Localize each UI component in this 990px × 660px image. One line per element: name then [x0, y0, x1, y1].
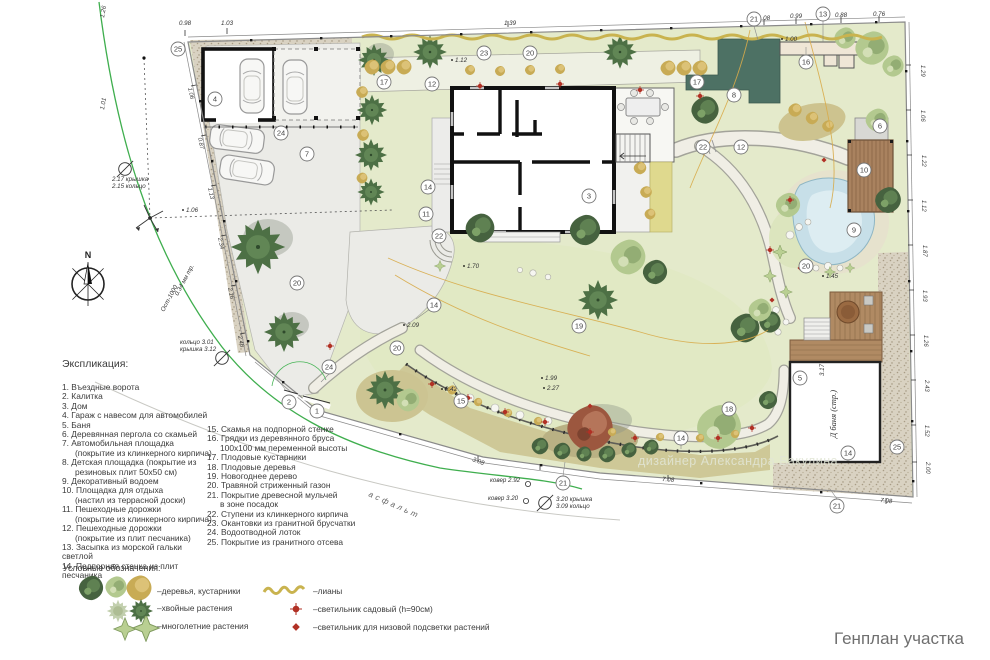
svg-text:17: 17: [380, 78, 388, 87]
marker-4: 4: [208, 92, 222, 106]
svg-text:1.12: 1.12: [455, 57, 468, 64]
svg-text:3.17: 3.17: [819, 363, 826, 376]
svg-text:Ост-1000: Ост-1000: [160, 284, 180, 313]
svg-text:0.98: 0.98: [179, 20, 192, 27]
marker-12: 12: [425, 77, 439, 91]
marker-14c: 14: [674, 431, 688, 445]
legend-label: –многолетние растения: [157, 621, 248, 631]
svg-text:3.09 кольцо: 3.09 кольцо: [556, 503, 590, 510]
designer-watermark: дизайнер Александра Бакулина: [638, 454, 838, 468]
marker-17b: 17: [690, 75, 704, 89]
car: [240, 59, 264, 113]
svg-text:2.27: 2.27: [546, 385, 560, 392]
svg-text:1.52: 1.52: [923, 425, 929, 437]
svg-text:2: 2: [287, 398, 291, 407]
svg-text:20: 20: [393, 344, 401, 353]
marker-23: 23: [477, 46, 491, 60]
marker-3: 3: [582, 189, 596, 203]
dining-table: [626, 98, 660, 116]
svg-text:12: 12: [737, 143, 745, 152]
list-item: 12. Пешеходные дорожки(покрытие из плит …: [62, 524, 212, 543]
legend-label: –светильник для низовой подсветки растен…: [313, 622, 490, 632]
svg-text:2.15 кольцо: 2.15 кольцо: [111, 183, 146, 190]
svg-text:1.99: 1.99: [545, 375, 558, 382]
svg-text:1.87: 1.87: [921, 245, 927, 257]
svg-text:2.43: 2.43: [923, 379, 929, 392]
legend-title: Условные обозначения:: [63, 563, 160, 573]
svg-text:10: 10: [860, 166, 868, 175]
marker-21b: 21: [556, 476, 570, 490]
svg-text:20: 20: [526, 49, 534, 58]
svg-text:1.06: 1.06: [186, 207, 199, 214]
svg-text:3: 3: [587, 192, 591, 201]
marker-11: 11: [419, 207, 433, 221]
marker-5: 5: [793, 371, 807, 385]
list-item: 25. Покрытие из гранитного отсева: [207, 538, 372, 547]
list-item: 8. Детская площадка (покрытие изрезиновы…: [62, 458, 212, 477]
svg-text:12: 12: [428, 80, 436, 89]
svg-text:ковер 2.92: ковер 2.92: [490, 477, 521, 484]
svg-text:11: 11: [422, 210, 430, 219]
list-item: 13. Засыпка из морской гальки светлой: [62, 543, 212, 562]
svg-text:14: 14: [424, 183, 432, 192]
marker-14a: 14: [421, 180, 435, 194]
lianas-icon: [262, 583, 310, 597]
svg-text:3.08: 3.08: [471, 456, 485, 467]
marker-19: 19: [572, 319, 586, 333]
svg-text:25: 25: [893, 443, 901, 452]
legend-label: –хвойные растения: [157, 603, 232, 613]
banya-label: Д баня (стр.): [828, 390, 838, 439]
svg-text:1.29: 1.29: [919, 65, 925, 77]
svg-text:4: 4: [213, 95, 217, 104]
explication-column-2: 15. Скамья на подпорной стенке 16. Грядк…: [207, 425, 372, 547]
svg-text:0.88: 0.88: [835, 12, 848, 19]
svg-text:1.26: 1.26: [99, 5, 108, 19]
svg-text:1.01: 1.01: [99, 97, 108, 110]
list-item: 10. Площадка для отдыха(настил из террас…: [62, 486, 212, 505]
svg-text:24: 24: [325, 363, 333, 372]
svg-text:1.93: 1.93: [921, 290, 927, 302]
compass: N: [72, 250, 104, 306]
legend-label: –лианы: [313, 586, 342, 596]
marker-24b: 24: [322, 360, 336, 374]
low-light-lamp-icon: [288, 620, 304, 634]
marker-24a: 24: [274, 126, 288, 140]
terrace-chair: [864, 296, 873, 305]
svg-text:1.03: 1.03: [221, 20, 234, 27]
marker-8: 8: [727, 88, 741, 102]
svg-text:7: 7: [305, 150, 309, 159]
marker-13: 13: [816, 7, 830, 21]
garden-lamp-icon: [288, 602, 304, 616]
svg-text:1.45: 1.45: [826, 273, 839, 280]
svg-text:17: 17: [693, 78, 701, 87]
marker-14b: 14: [427, 298, 441, 312]
list-item: 11. Пешеходные дорожки(покрытие из клинк…: [62, 505, 212, 524]
marker-25a: 25: [171, 42, 185, 56]
svg-text:2.17 крышка: 2.17 крышка: [111, 176, 149, 183]
svg-text:22: 22: [435, 232, 443, 241]
marker-20c: 20: [390, 341, 404, 355]
svg-text:1.26: 1.26: [922, 335, 928, 347]
svg-text:0.99: 0.99: [790, 13, 803, 20]
asphalt-label: асфальт: [367, 490, 422, 521]
svg-text:1.12: 1.12: [920, 200, 926, 212]
svg-text:крышка 3.12: крышка 3.12: [180, 346, 217, 353]
marker-25b: 25: [890, 440, 904, 454]
svg-text:8: 8: [732, 91, 736, 100]
svg-text:20: 20: [802, 262, 810, 271]
svg-text:25: 25: [174, 45, 182, 54]
explication-column-1: 1. Въездные ворота 2. Калитка 3. Дом 4. …: [62, 383, 212, 581]
list-item: 7. Автомобильная площадка(покрытие из кл…: [62, 439, 212, 458]
svg-text:23: 23: [480, 49, 488, 58]
marker-12b: 12: [734, 140, 748, 154]
perennial-plants-icon: [112, 616, 162, 642]
svg-text:7.08: 7.08: [880, 497, 893, 505]
explication-title: Экспликация:: [62, 358, 128, 370]
marker-20d: 20: [799, 259, 813, 273]
svg-text:21: 21: [750, 15, 758, 24]
svg-text:7.08: 7.08: [662, 476, 675, 484]
svg-text:1.06: 1.06: [919, 110, 925, 122]
marker-16: 16: [799, 55, 813, 69]
marker-20b: 20: [290, 276, 304, 290]
terrace-chair: [864, 324, 873, 333]
svg-text:1.70: 1.70: [467, 263, 480, 270]
svg-text:15: 15: [457, 397, 465, 406]
north-label: N: [85, 250, 92, 260]
marker-1: 1: [310, 404, 324, 418]
svg-text:1.13: 1.13: [206, 187, 214, 200]
svg-text:5: 5: [798, 374, 802, 383]
marker-21a: 21: [747, 12, 761, 26]
svg-text:9: 9: [852, 226, 856, 235]
svg-text:19: 19: [575, 322, 583, 331]
svg-text:14: 14: [844, 449, 852, 458]
svg-text:13: 13: [819, 10, 827, 19]
svg-text:16: 16: [802, 58, 810, 67]
svg-text:24: 24: [277, 129, 285, 138]
svg-text:3.20 крышка: 3.20 крышка: [556, 496, 593, 503]
marker-20a: 20: [523, 46, 537, 60]
svg-text:21: 21: [833, 502, 841, 511]
marker-9: 9: [847, 223, 861, 237]
svg-text:6: 6: [878, 122, 882, 131]
svg-text:1.06: 1.06: [186, 87, 194, 100]
marker-2: 2: [282, 395, 296, 409]
marker-22a: 22: [432, 229, 446, 243]
marker-21c: 21: [830, 499, 844, 513]
svg-text:1.00: 1.00: [785, 36, 798, 43]
marker-17a: 17: [377, 75, 391, 89]
marker-10: 10: [857, 163, 871, 177]
car: [283, 60, 307, 114]
legend-label: –деревья, кустарники: [157, 586, 240, 596]
marker-18: 18: [722, 402, 736, 416]
marker-7: 7: [300, 147, 314, 161]
svg-text:14: 14: [430, 301, 438, 310]
svg-text:1.22: 1.22: [920, 155, 926, 167]
svg-text:0.87: 0.87: [196, 137, 204, 150]
svg-text:1.39: 1.39: [504, 20, 517, 27]
legend-label: –светильник садовый (h=90см): [313, 604, 433, 614]
genplan-page: Д баня (стр.): [0, 0, 990, 660]
svg-text:21: 21: [559, 479, 567, 488]
svg-text:2.42: 2.42: [444, 386, 458, 393]
list-item: 21. Покрытие древесной мульчейв зоне пос…: [207, 491, 372, 510]
list-item: 16. Грядки из деревянного бруса100х100 м…: [207, 434, 372, 453]
svg-text:22: 22: [699, 143, 707, 152]
svg-text:14: 14: [677, 434, 685, 443]
marker-15: 15: [454, 394, 468, 408]
svg-text:кольцо 3.01: кольцо 3.01: [180, 339, 214, 346]
svg-text:2.00: 2.00: [924, 461, 930, 474]
svg-text:ковер 3.20: ковер 3.20: [488, 495, 519, 502]
svg-text:20: 20: [293, 279, 301, 288]
marker-14d: 14: [841, 446, 855, 460]
marker-6: 6: [873, 119, 887, 133]
dimension-labels-east: 1.29 1.06 1.22 1.12 1.87 1.93 1.26 2.43 …: [919, 65, 930, 474]
sheet-title: Генплан участка: [834, 629, 964, 649]
svg-text:2.09: 2.09: [406, 322, 420, 329]
svg-text:1: 1: [315, 407, 319, 416]
svg-text:0.76: 0.76: [873, 11, 886, 18]
svg-text:18: 18: [725, 405, 733, 414]
marker-22b: 22: [696, 140, 710, 154]
